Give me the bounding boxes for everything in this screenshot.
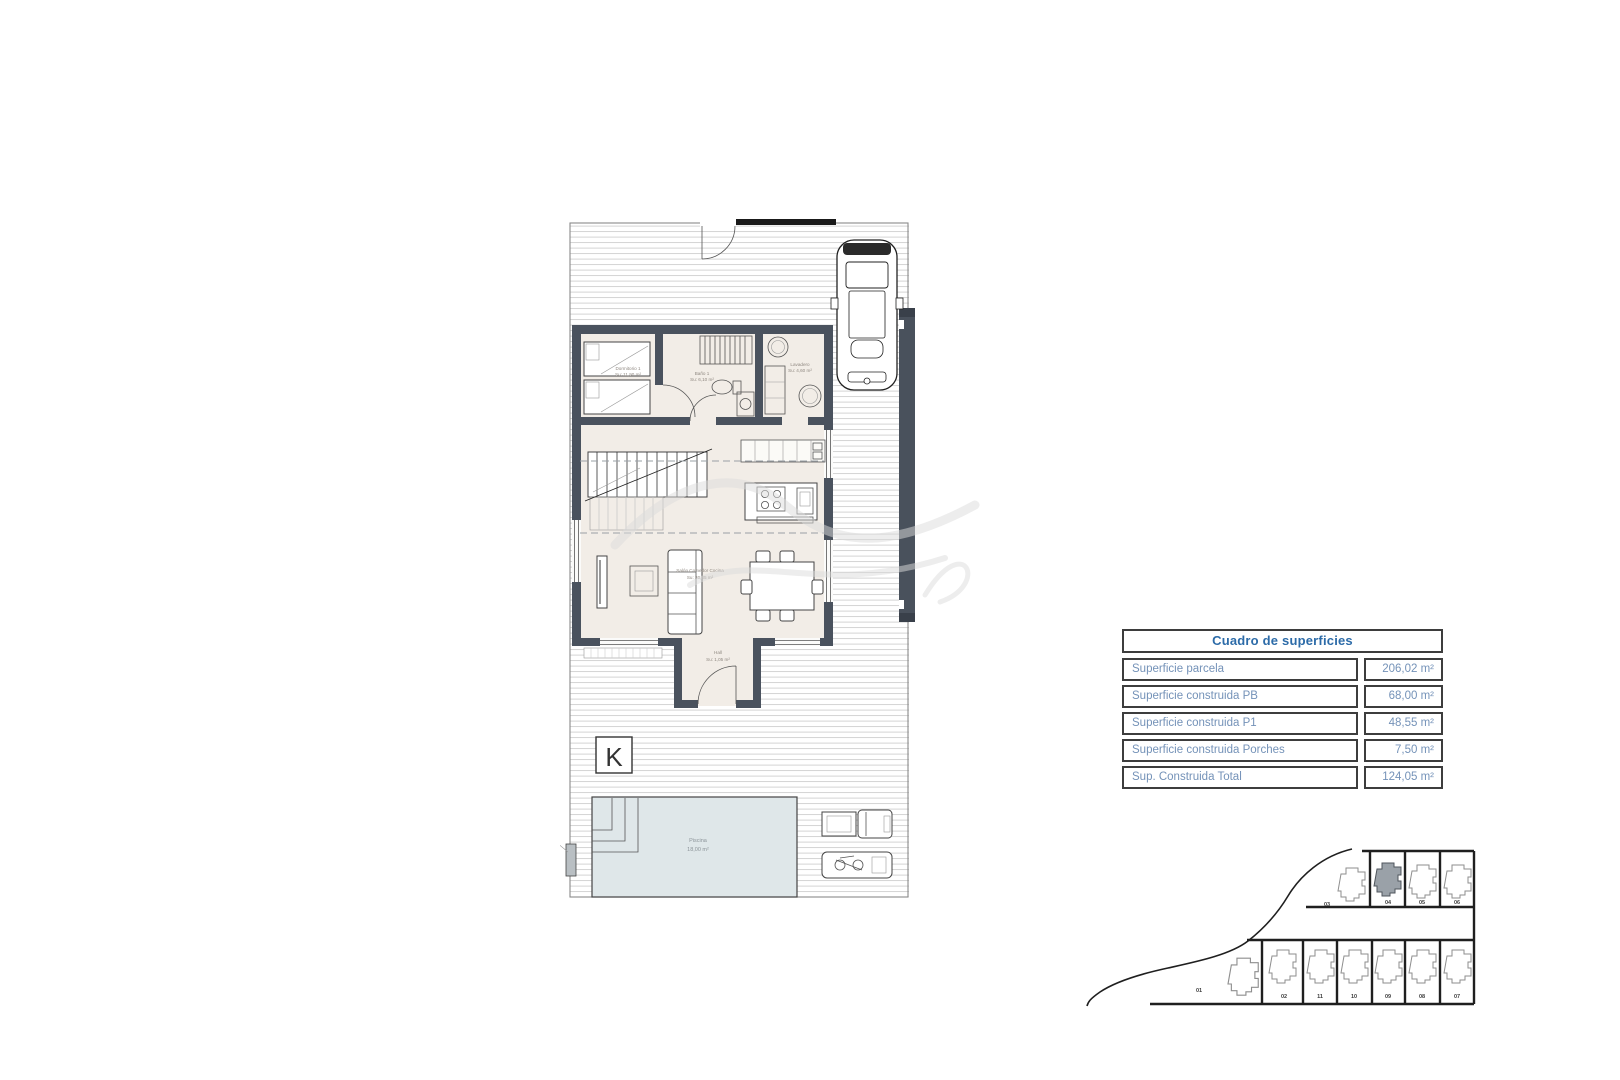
surface-label: Superficie construida PB: [1122, 685, 1358, 708]
bed-2: [584, 380, 650, 414]
surface-label: Superficie construida P1: [1122, 712, 1358, 735]
chair: [756, 551, 770, 562]
room-label: Salón Comedor Cocina: [676, 568, 724, 573]
house-07: [1444, 950, 1471, 983]
tv-unit: [597, 556, 607, 608]
kitchen-island: [745, 483, 817, 520]
surface-value: 68,00 m²: [1364, 685, 1443, 708]
plot-label-11: 11: [1317, 994, 1323, 1000]
surface-label: Sup. Construida Total: [1122, 766, 1358, 789]
plot-label-05: 05: [1419, 900, 1425, 906]
table-row: Superficie construida PB 68,00 m²: [1122, 685, 1443, 708]
room-label: Dormitorio 1: [615, 366, 640, 371]
house-10: [1341, 950, 1368, 983]
pool-area: 18,00 m²: [687, 847, 709, 853]
plot-label-02: 02: [1281, 994, 1287, 1000]
chair: [741, 580, 752, 594]
plot-label-03: 03: [1324, 902, 1330, 908]
house-08: [1409, 950, 1436, 983]
boundary-wall-segment: [736, 219, 836, 225]
car-mirror-left: [831, 298, 838, 309]
pool-label: Piscina: [689, 838, 708, 844]
k-logo: K: [596, 737, 632, 773]
house-11: [1307, 950, 1334, 983]
surface-label: Superficie parcela: [1122, 658, 1358, 681]
neighbor-wall: [899, 308, 915, 622]
plot-label-07: 07: [1454, 994, 1460, 1000]
porch-deck: [584, 648, 662, 658]
highlighted-plot-house: [1374, 863, 1401, 896]
room-area: Su: 30,85 m²: [687, 575, 714, 580]
chair: [756, 610, 770, 621]
site-houses: [1228, 863, 1471, 995]
plan-sheet: Dormitorio 1 Su: 11,90 m² Baño 1: [0, 0, 1620, 1080]
car-mirror-right: [896, 298, 903, 309]
gate-opening: [700, 219, 736, 227]
plot-label-10: 10: [1351, 994, 1357, 1000]
chair: [812, 580, 823, 594]
room-area: Su: 6,10 m²: [690, 377, 714, 382]
plot-label-09: 09: [1385, 994, 1391, 1000]
room-area: Su: 4,60 m²: [788, 368, 812, 373]
plot-label-08: 08: [1419, 994, 1425, 1000]
house-02: [1269, 950, 1296, 983]
cascade-feature: [566, 844, 576, 876]
dining-table: [741, 551, 823, 621]
table-row: Sup. Construida Total 124,05 m²: [1122, 766, 1443, 789]
room-area: Su: 1,05 m²: [706, 657, 730, 662]
house-01: [1228, 958, 1258, 995]
pool: Cascada Piscina 18,00 m²: [560, 797, 797, 897]
surface-value: 48,55 m²: [1364, 712, 1443, 735]
plot-label-01: 01: [1196, 988, 1202, 994]
chair: [780, 610, 794, 621]
floor-plan: Dormitorio 1 Su: 11,90 m² Baño 1: [560, 200, 920, 910]
table-row: Superficie parcela 206,02 m²: [1122, 658, 1443, 681]
surface-label: Superficie construida Porches: [1122, 739, 1358, 762]
house-03: [1338, 868, 1365, 901]
svg-text:K: K: [605, 742, 623, 772]
car: [831, 240, 903, 390]
plot-label-06: 06: [1454, 900, 1460, 906]
surface-value: 206,02 m²: [1364, 658, 1443, 681]
site-plan: 03 04 05 06 01 02 11 10 09 08 07: [1085, 815, 1480, 1015]
trailer-icon: [822, 852, 892, 878]
room-area: Su: 11,90 m²: [615, 372, 641, 377]
table-row: Superficie construida P1 48,55 m²: [1122, 712, 1443, 735]
surfaces-table: Cuadro de superficies Superficie parcela…: [1122, 629, 1443, 793]
chair: [780, 551, 794, 562]
room-label: Lavadero: [790, 362, 810, 367]
house-09: [1375, 950, 1402, 983]
site-boundary: [1087, 849, 1352, 1006]
sofa: [668, 550, 702, 634]
plot-label-04: 04: [1385, 900, 1392, 906]
room-label: Hall: [714, 650, 722, 655]
surfaces-table-title: Cuadro de superficies: [1122, 629, 1443, 653]
room-label: Baño 1: [695, 371, 710, 376]
surface-value: 124,05 m²: [1364, 766, 1443, 789]
house-05: [1409, 865, 1436, 898]
house-06: [1444, 865, 1471, 898]
surface-value: 7,50 m²: [1364, 739, 1443, 762]
table-row: Superficie construida Porches 7,50 m²: [1122, 739, 1443, 762]
